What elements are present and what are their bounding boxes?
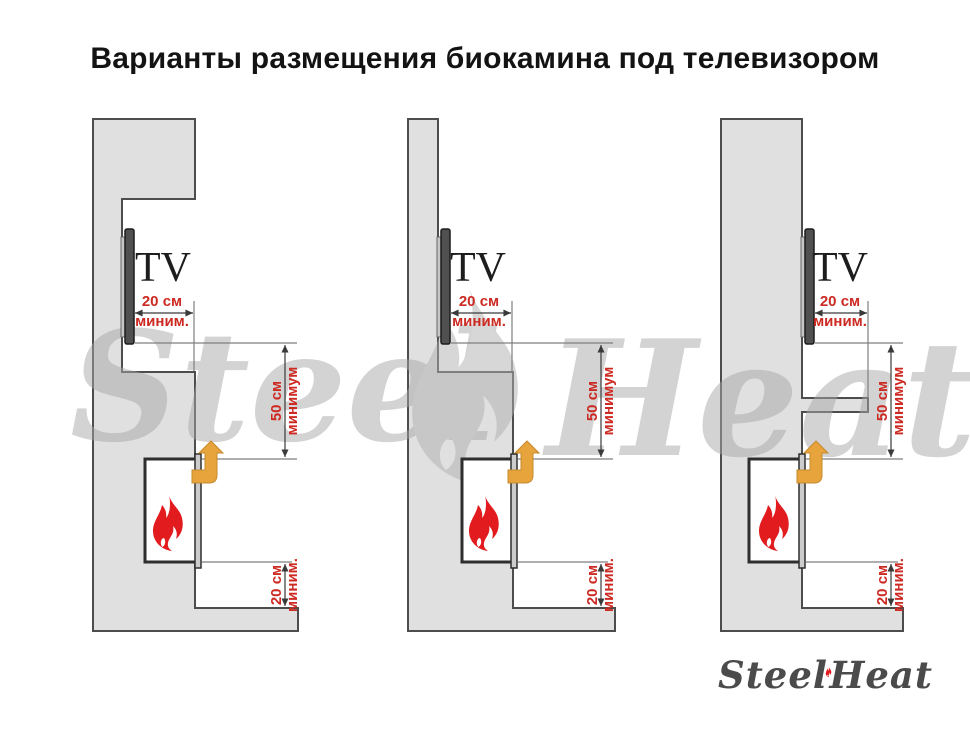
- tv-label: TV: [448, 244, 508, 292]
- dim-middle-value: 50 см: [585, 381, 601, 421]
- dim-top-qualifier: миним.: [127, 314, 197, 330]
- brand-logo: Steel Heat: [718, 648, 933, 702]
- dim-middle: 50 см минимум: [584, 336, 618, 466]
- dim-top-value: 20 см: [805, 294, 875, 310]
- dim-bottom-qualifier: миним.: [285, 558, 301, 612]
- dim-middle: 50 см минимум: [874, 336, 908, 466]
- logo-heat-text: Heat: [829, 653, 933, 697]
- dim-top-value: 20 см: [127, 294, 197, 310]
- dim-bottom-value: 20 см: [585, 565, 601, 605]
- dim-top-qualifier: миним.: [444, 314, 514, 330]
- dim-middle-qualifier: минимум: [285, 367, 301, 436]
- tv-label: TV: [810, 244, 870, 292]
- dim-bottom-qualifier: миним.: [601, 558, 617, 612]
- dim-bottom-value: 20 см: [875, 565, 891, 605]
- logo-steel-text: Steel: [718, 653, 828, 697]
- infographic-canvas: Steel Heat: [0, 0, 970, 754]
- diagram-scene: Steel Heat: [0, 0, 970, 754]
- dim-middle-value: 50 см: [269, 381, 285, 421]
- dim-top-value: 20 см: [444, 294, 514, 310]
- dim-middle-qualifier: минимум: [891, 367, 907, 436]
- dim-bottom: 20 см миним.: [268, 520, 302, 650]
- page-title: Варианты размещения биокамина под телеви…: [0, 42, 970, 76]
- dim-bottom-value: 20 см: [269, 565, 285, 605]
- tv-label: TV: [133, 244, 193, 292]
- dim-top-qualifier: миним.: [805, 314, 875, 330]
- dim-bottom-qualifier: миним.: [891, 558, 907, 612]
- dim-middle-qualifier: минимум: [601, 367, 617, 436]
- dim-middle-value: 50 см: [875, 381, 891, 421]
- dim-bottom: 20 см миним.: [874, 520, 908, 650]
- dim-bottom: 20 см миним.: [584, 520, 618, 650]
- dim-middle: 50 см минимум: [268, 336, 302, 466]
